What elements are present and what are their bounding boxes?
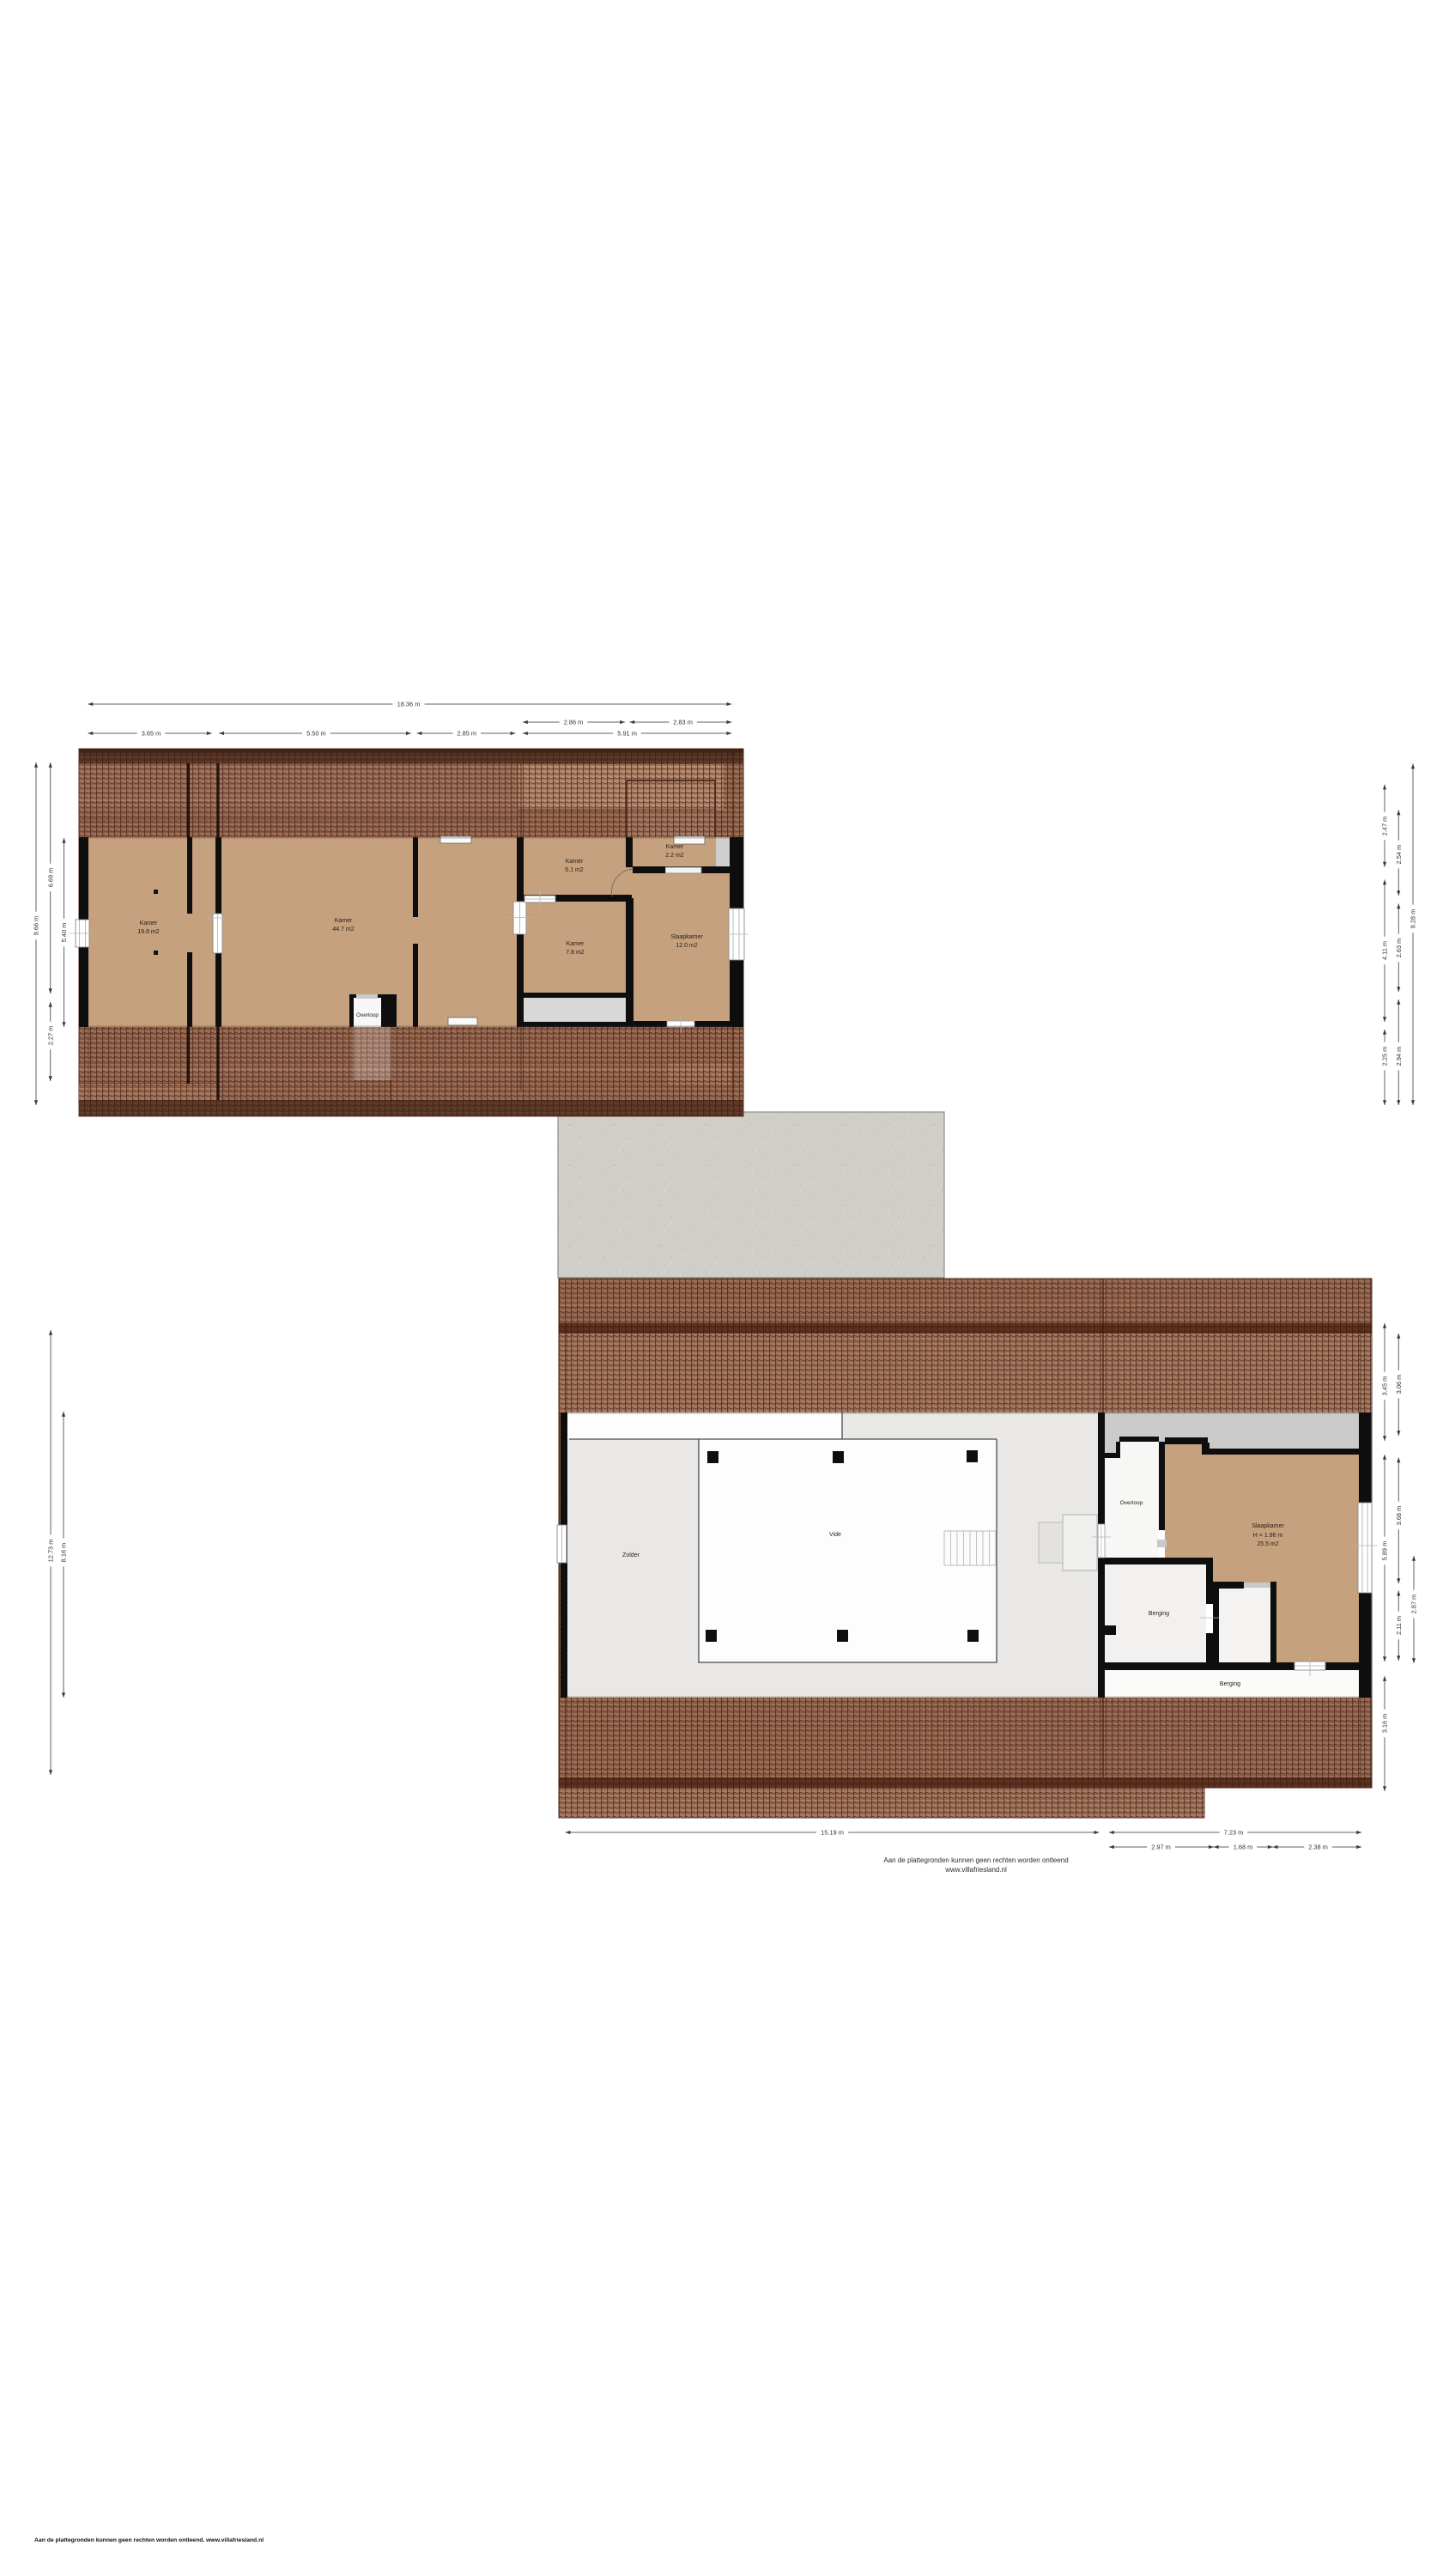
svg-text:Overloop: Overloop bbox=[1120, 1500, 1143, 1506]
svg-text:2.97 m: 2.97 m bbox=[1151, 1844, 1171, 1851]
svg-text:2.87 m: 2.87 m bbox=[1410, 1595, 1418, 1614]
svg-text:9.66 m: 9.66 m bbox=[33, 916, 40, 936]
svg-text:44.7 m2: 44.7 m2 bbox=[332, 927, 354, 933]
svg-text:Kamer: Kamer bbox=[335, 918, 353, 924]
svg-text:5.91 m: 5.91 m bbox=[617, 730, 637, 738]
svg-text:12.73 m: 12.73 m bbox=[47, 1540, 55, 1563]
svg-text:Kamer: Kamer bbox=[566, 859, 584, 865]
svg-text:www.villafriesland.nl: www.villafriesland.nl bbox=[944, 1866, 1007, 1874]
svg-text:3.65 m: 3.65 m bbox=[142, 730, 161, 738]
svg-text:Aan de plattegronden kunnen ge: Aan de plattegronden kunnen geen rechten… bbox=[34, 2537, 264, 2543]
svg-text:Overloop: Overloop bbox=[356, 1012, 379, 1018]
svg-text:9.28 m: 9.28 m bbox=[1410, 909, 1417, 929]
svg-text:2.27 m: 2.27 m bbox=[46, 1026, 54, 1046]
svg-text:2.94 m: 2.94 m bbox=[1395, 1047, 1403, 1066]
svg-text:2.47 m: 2.47 m bbox=[1381, 817, 1389, 836]
svg-text:2.85 m: 2.85 m bbox=[457, 730, 476, 738]
svg-text:H = 1.96 m: H = 1.96 m bbox=[1253, 1533, 1283, 1539]
svg-text:6.69 m: 6.69 m bbox=[46, 868, 54, 888]
svg-text:Kamer: Kamer bbox=[567, 941, 585, 947]
svg-text:3.16 m: 3.16 m bbox=[1381, 1714, 1389, 1734]
svg-text:Aan de plattegronden kunnen ge: Aan de plattegronden kunnen geen rechten… bbox=[883, 1856, 1068, 1864]
svg-text:7.8 m2: 7.8 m2 bbox=[566, 950, 585, 956]
svg-text:3.45 m: 3.45 m bbox=[1381, 1376, 1389, 1396]
svg-text:2.86 m: 2.86 m bbox=[564, 719, 584, 726]
svg-text:Slaapkamer: Slaapkamer bbox=[670, 934, 703, 940]
svg-text:15.19 m: 15.19 m bbox=[821, 1829, 844, 1837]
svg-text:18.36 m: 18.36 m bbox=[397, 701, 421, 708]
svg-text:5.40 m: 5.40 m bbox=[60, 923, 68, 943]
svg-text:5.89 m: 5.89 m bbox=[1381, 1541, 1389, 1561]
svg-text:Kamer: Kamer bbox=[140, 920, 158, 927]
svg-text:3.68 m: 3.68 m bbox=[1395, 1506, 1403, 1526]
svg-text:4.11 m: 4.11 m bbox=[1381, 941, 1389, 960]
svg-text:2.2 m2: 2.2 m2 bbox=[665, 853, 684, 859]
svg-text:Vide: Vide bbox=[829, 1532, 841, 1538]
svg-text:5.1 m2: 5.1 m2 bbox=[565, 867, 584, 873]
svg-text:1.68 m: 1.68 m bbox=[1234, 1844, 1253, 1851]
svg-text:8.16 m: 8.16 m bbox=[60, 1543, 68, 1563]
svg-text:19.8 m2: 19.8 m2 bbox=[137, 929, 159, 935]
svg-text:Kamer: Kamer bbox=[666, 844, 684, 850]
svg-text:5.50 m: 5.50 m bbox=[306, 730, 326, 738]
svg-text:7.23 m: 7.23 m bbox=[1224, 1829, 1244, 1837]
svg-text:2.11 m: 2.11 m bbox=[1395, 1616, 1403, 1635]
svg-text:Zolder: Zolder bbox=[622, 1552, 640, 1558]
svg-text:Berging: Berging bbox=[1220, 1681, 1240, 1687]
svg-text:Berging: Berging bbox=[1149, 1611, 1169, 1617]
svg-text:3.06 m: 3.06 m bbox=[1395, 1375, 1403, 1394]
svg-text:12.0 m2: 12.0 m2 bbox=[676, 943, 697, 949]
svg-text:2.63 m: 2.63 m bbox=[1395, 939, 1403, 958]
svg-text:2.25 m: 2.25 m bbox=[1381, 1047, 1389, 1066]
svg-text:2.38 m: 2.38 m bbox=[1308, 1844, 1328, 1851]
svg-text:Slaapkamer: Slaapkamer bbox=[1252, 1523, 1284, 1529]
svg-text:2.54 m: 2.54 m bbox=[1395, 845, 1403, 865]
svg-text:2.83 m: 2.83 m bbox=[673, 719, 693, 726]
svg-text:25.5 m2: 25.5 m2 bbox=[1257, 1541, 1278, 1547]
